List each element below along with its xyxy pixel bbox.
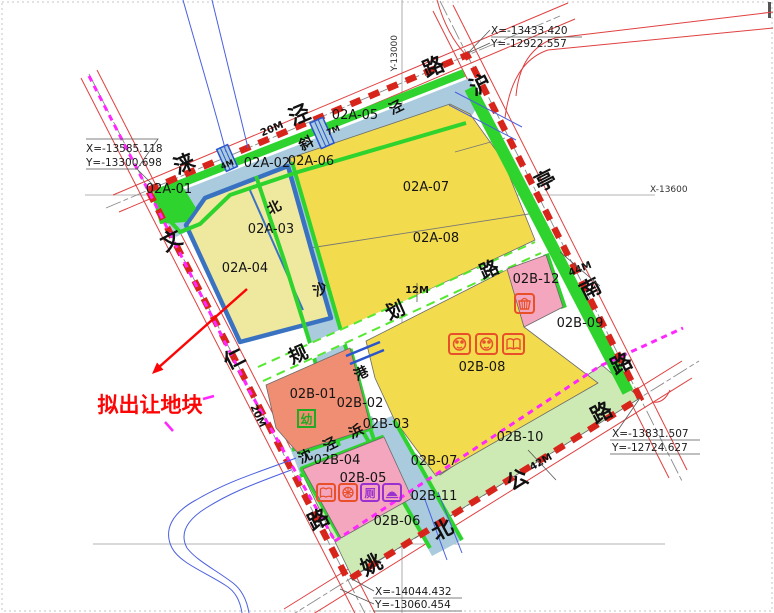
parcel-label: 02A-04 [222,261,268,276]
kindergarten-icon: 幼 [298,410,315,427]
parcel-label: 02A-03 [248,222,294,237]
parcel-label: 02B-07 [411,454,458,469]
svg-text:幼: 幼 [300,412,312,427]
parcel-label: 02B-04 [314,453,361,468]
coord-x: X=-14044.432 [375,586,452,598]
coord-y: Y=-12922.557 [490,38,567,50]
plan-map-page: 幼 厕 [0,0,774,613]
parcel-label: 02B-10 [497,430,544,445]
coord-x: X=-13433.420 [491,25,568,37]
annotation-text: 拟出让地块 [98,393,204,417]
parcel-label: 02B-01 [290,387,337,402]
window-edge-artifact [768,2,771,18]
parcel-label: 02B-02 [337,396,384,411]
parcel-label: 02A-07 [403,180,449,195]
road-char: 亭 [531,165,561,196]
road-char: 仁 [220,343,250,374]
parcel-label: 02B-05 [340,471,387,486]
parcel-label: 02B-11 [411,489,458,504]
parcel-label: 02B-06 [374,514,421,529]
parcel-label: 02B-03 [363,417,410,432]
coord-y: Y=-13300.698 [85,157,162,169]
grid-label-y: Y-13000 [390,35,400,73]
svg-text:厕: 厕 [365,487,376,500]
coord-y: Y=-13060.454 [374,599,451,611]
road-width-label: 20M [248,403,268,429]
parcel-label: 02B-09 [557,316,604,331]
parcel-label: 02A-02 [244,156,290,171]
parcel-label: 02A-08 [413,231,459,246]
coord-y: Y=-12724.627 [611,442,688,454]
road-char: 泾 [285,100,314,130]
parcel-label: 02B-12 [513,272,560,287]
parcel-label: 02A-05 [332,108,378,123]
parcel-label: 02A-06 [288,154,334,169]
coord-x: X=-13831.507 [612,428,689,440]
parcel-label: 02B-08 [459,360,506,375]
grid-label-x: X-13600 [650,185,688,195]
site-plan-map: 幼 厕 [0,0,774,613]
